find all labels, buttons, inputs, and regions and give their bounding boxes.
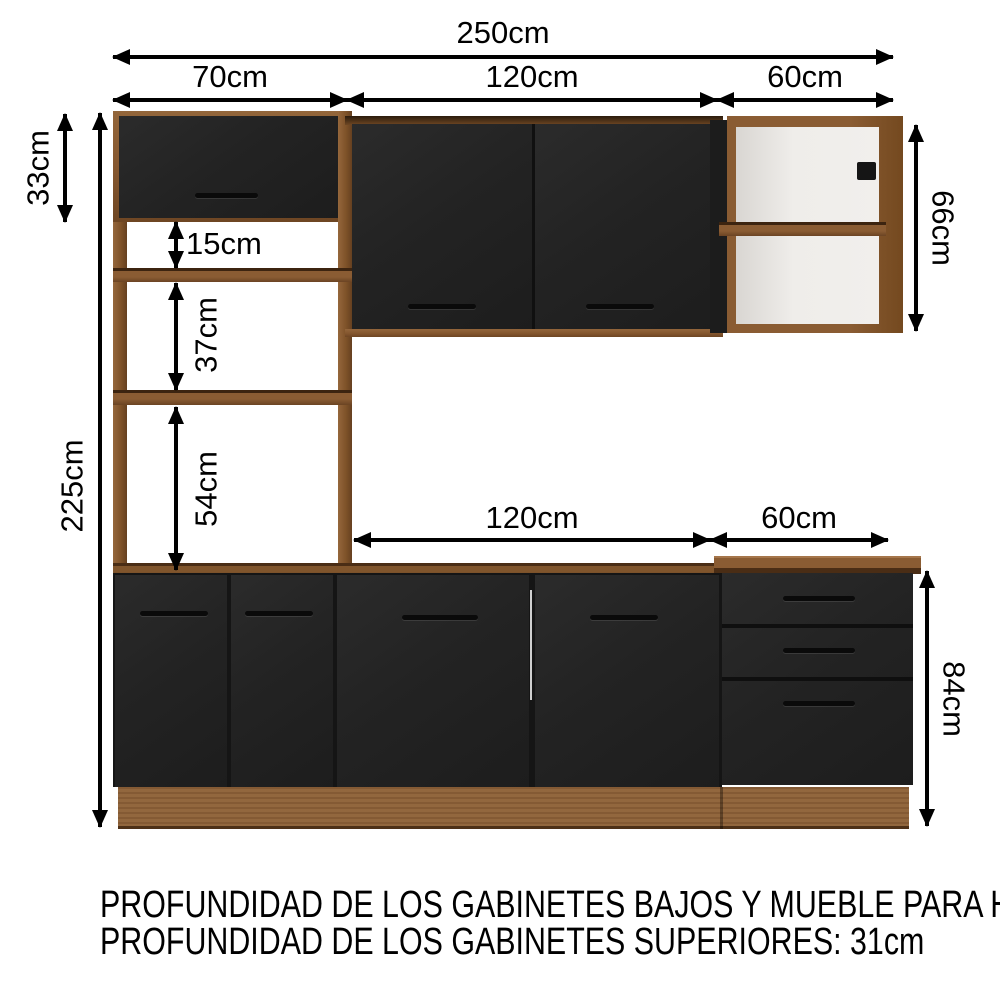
tower-top-cabinet-door <box>119 116 338 218</box>
dim-label-total-height: 225cm <box>57 439 88 532</box>
drawer-1-handle <box>783 596 855 601</box>
tower-shelf-upper <box>113 268 352 282</box>
dim-arrow-upper-right-height <box>914 125 918 331</box>
base-door-2 <box>231 575 333 787</box>
upper-center-cabinet-handle-right <box>586 304 654 309</box>
dim-label-counter-right: 60cm <box>710 501 888 535</box>
base-door-1-handle <box>140 611 208 616</box>
dim-label-right-section: 60cm <box>717 60 893 94</box>
dim-label-counter-center: 120cm <box>354 501 710 535</box>
upper-right-cabinet-shelf <box>719 222 886 236</box>
dim-arrow-center-section <box>347 98 717 102</box>
dim-arrow-niche-3 <box>174 407 178 570</box>
tower-top-cabinet-handle <box>195 193 258 198</box>
dim-label-upper-right-height: 66cm <box>928 190 959 266</box>
depth-note-upper-cabinets: PROFUNDIDAD DE LOS GABINETES SUPERIORES:… <box>100 923 900 961</box>
dim-label-niche-3: 54cm <box>191 451 222 527</box>
tower-right-post <box>338 111 352 573</box>
dim-label-niche-1: 15cm <box>186 227 262 261</box>
tower-shelf-lower <box>113 390 352 405</box>
base-door-3 <box>337 575 529 787</box>
dim-arrow-tower-door-height <box>63 114 67 222</box>
kitchen-dimension-diagram: 250cm 70cm 120cm 60cm 33cm 225cm 15cm 37… <box>0 0 1000 1000</box>
base-door-3-handle <box>402 615 478 620</box>
dim-arrow-left-section <box>113 98 347 102</box>
upper-center-cabinet-door-right <box>535 124 720 329</box>
drawer-2-handle <box>783 648 855 653</box>
drawer-divider-2 <box>722 677 913 681</box>
upper-right-cabinet-hinge <box>857 162 876 180</box>
dim-label-tower-door-height: 33cm <box>23 130 54 206</box>
depth-note-lower-cabinets: PROFUNDIDAD DE LOS GABINETES BAJOS Y MUE… <box>100 886 900 924</box>
dim-label-total-width: 250cm <box>113 16 893 50</box>
dim-arrow-counter-right <box>710 538 888 542</box>
base-door-1 <box>115 575 227 787</box>
drawer-unit-countertop <box>714 556 921 574</box>
dim-label-niche-2: 37cm <box>191 297 222 373</box>
dim-arrow-niche-2 <box>174 283 178 390</box>
dim-arrow-base-height <box>925 571 929 826</box>
dim-label-left-section: 70cm <box>113 60 347 94</box>
upper-center-cabinet-door-left <box>352 124 532 329</box>
dim-arrow-total-height <box>98 113 102 827</box>
drawer-3-handle <box>783 701 855 706</box>
drawer-divider-1 <box>722 624 913 628</box>
upper-center-cabinet-handle-left <box>408 304 476 309</box>
dim-label-center-section: 120cm <box>347 60 717 94</box>
base-door-4-handle <box>590 615 658 620</box>
dim-arrow-right-section <box>717 98 893 102</box>
base-door-2-handle <box>245 611 313 616</box>
base-door-4 <box>535 575 719 787</box>
base-door-gap-highlight <box>530 590 532 700</box>
dim-arrow-counter-center <box>354 538 710 542</box>
kick-plate-seam <box>720 787 723 829</box>
dim-label-base-height: 84cm <box>939 661 970 737</box>
kick-plate <box>118 787 909 829</box>
upper-center-cabinet-bottom-edge <box>345 329 723 337</box>
dim-arrow-niche-1 <box>174 222 178 268</box>
